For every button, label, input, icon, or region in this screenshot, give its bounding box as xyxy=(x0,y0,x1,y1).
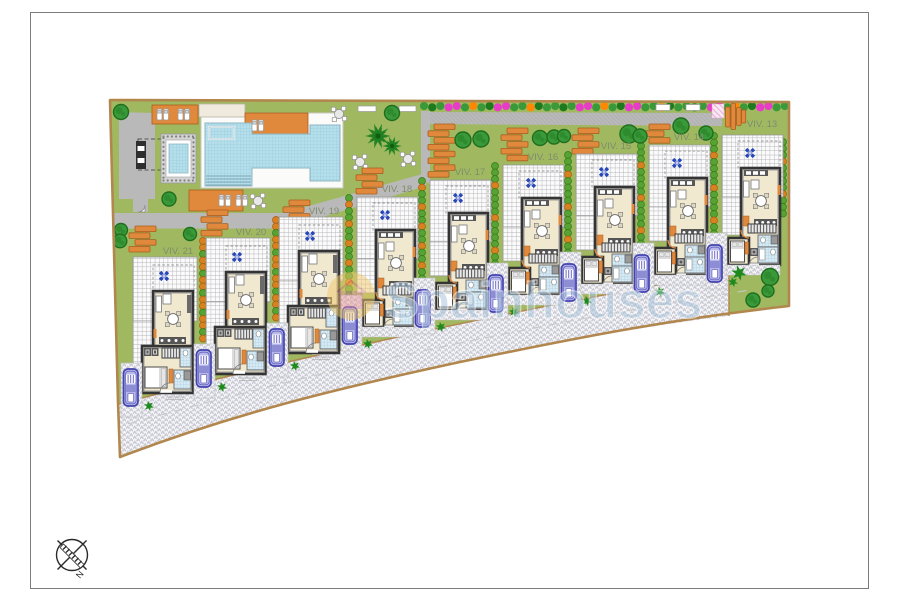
svg-text:VIV. 20: VIV. 20 xyxy=(236,227,266,238)
svg-text:VIV. 21: VIV. 21 xyxy=(163,246,193,257)
svg-text:Spainhouses: Spainhouses xyxy=(385,272,702,329)
svg-text:VIV. 16: VIV. 16 xyxy=(528,152,558,163)
svg-text:VIV. 19: VIV. 19 xyxy=(309,206,339,217)
svg-text:VIV. 13: VIV. 13 xyxy=(747,119,777,130)
svg-text:VIV. 15: VIV. 15 xyxy=(601,141,631,152)
svg-text:VIV. 14: VIV. 14 xyxy=(674,132,704,143)
svg-text:VIV. 18: VIV. 18 xyxy=(382,184,412,195)
svg-text:VIV. 17: VIV. 17 xyxy=(455,167,485,178)
